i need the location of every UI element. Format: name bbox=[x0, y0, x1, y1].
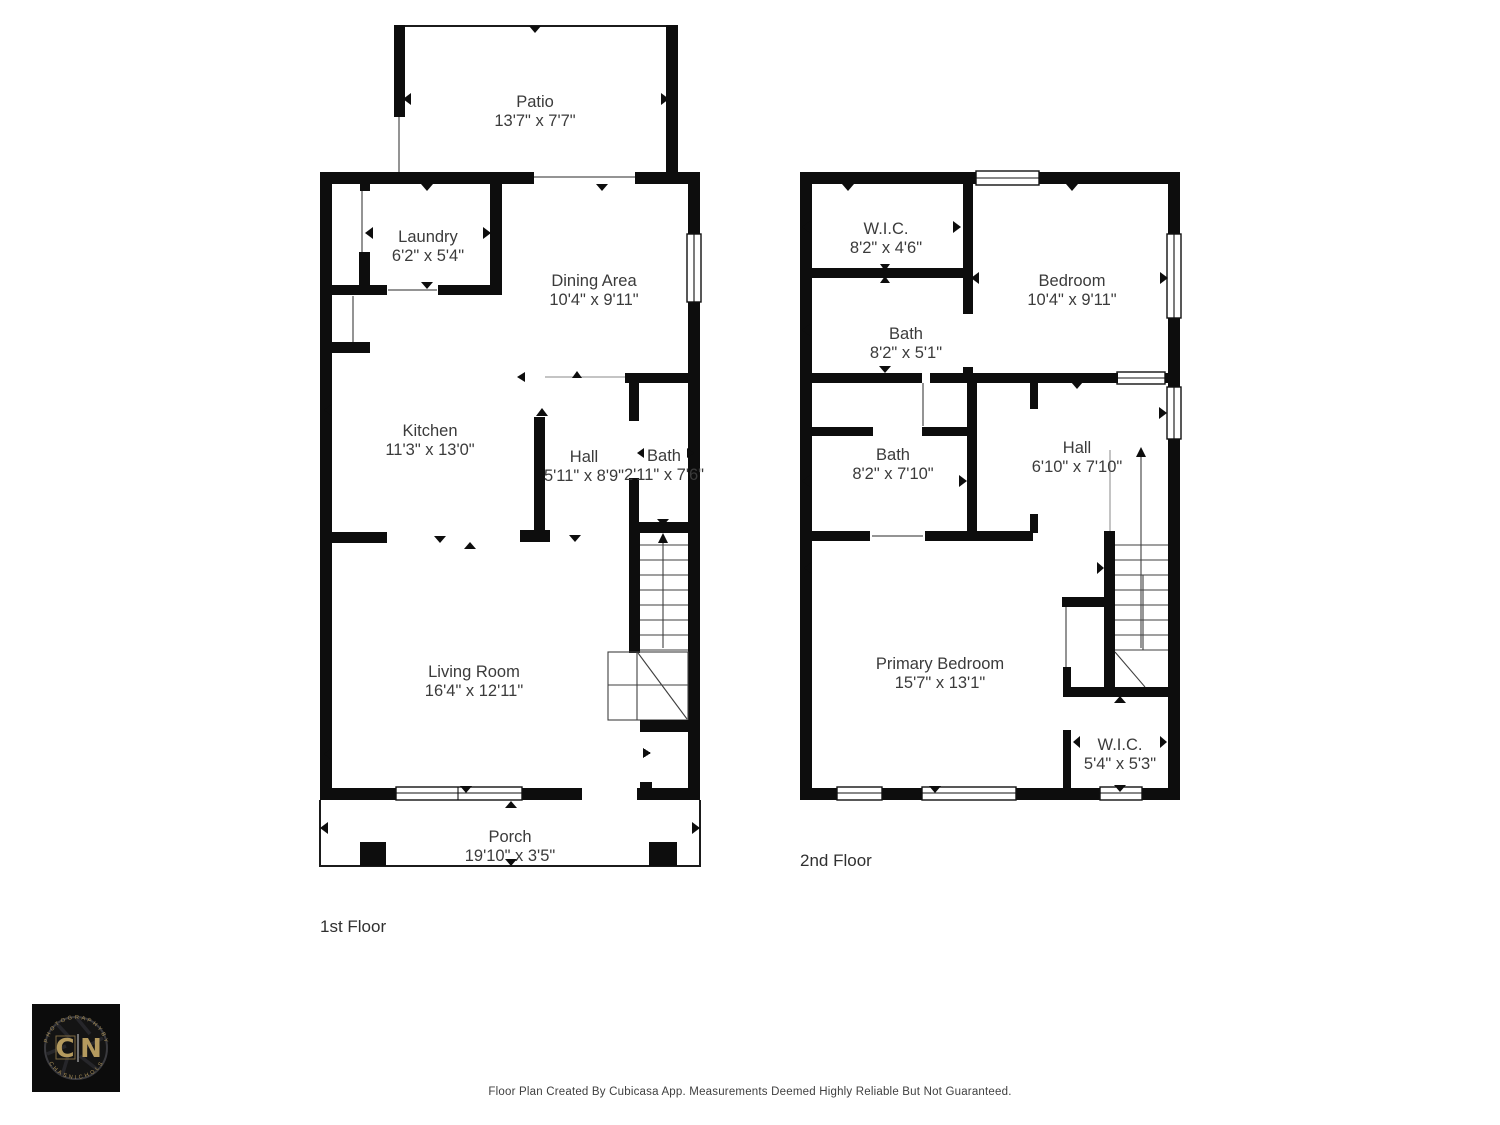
room-name: Living Room bbox=[425, 663, 523, 682]
room-name: W.I.C. bbox=[850, 220, 922, 239]
floor-caption-first: 1st Floor bbox=[320, 917, 386, 937]
room-name: Hall bbox=[1032, 439, 1123, 458]
room-label-patio: Patio 13'7" x 7'7" bbox=[494, 93, 575, 131]
room-dims: 16'4" x 12'11" bbox=[425, 682, 523, 701]
first-floor-plan bbox=[320, 25, 701, 866]
room-name: Laundry bbox=[392, 228, 464, 247]
room-dims: 8'2" x 4'6" bbox=[850, 239, 922, 258]
room-dims: 13'7" x 7'7" bbox=[494, 112, 575, 131]
room-label-hall-1f: Hall 5'11" x 8'9" bbox=[544, 448, 624, 486]
room-name: W.I.C. bbox=[1084, 736, 1156, 755]
room-name: Hall bbox=[544, 448, 624, 467]
room-label-living-room: Living Room 16'4" x 12'11" bbox=[425, 663, 523, 701]
room-label-wic-upper: W.I.C. 8'2" x 4'6" bbox=[850, 220, 922, 258]
room-name: Porch bbox=[465, 828, 556, 847]
stairs-1f bbox=[608, 519, 688, 720]
room-name: Bath bbox=[624, 447, 704, 466]
disclaimer-text: Floor Plan Created By Cubicasa App. Meas… bbox=[0, 1086, 1500, 1098]
logo-initial-left: C bbox=[55, 1034, 74, 1064]
second-floor-plan bbox=[800, 171, 1181, 800]
first-floor-outer-walls bbox=[320, 172, 700, 800]
room-dims: 11'3" x 13'0" bbox=[385, 441, 474, 460]
laundry-walls bbox=[322, 183, 502, 353]
room-dims: 15'7" x 13'1" bbox=[876, 674, 1004, 693]
room-label-laundry: Laundry 6'2" x 5'4" bbox=[392, 228, 464, 266]
room-label-bedroom: Bedroom 10'4" x 9'11" bbox=[1027, 272, 1116, 310]
room-name: Primary Bedroom bbox=[876, 655, 1004, 674]
room-label-bath-upper: Bath 8'2" x 5'1" bbox=[870, 325, 942, 363]
room-dims: 6'2" x 5'4" bbox=[392, 247, 464, 266]
room-label-primary-bedroom: Primary Bedroom 15'7" x 13'1" bbox=[876, 655, 1004, 693]
room-dims: 5'11" x 8'9" bbox=[544, 467, 624, 486]
room-label-bath-1f: Bath 2'11" x 7'6" bbox=[624, 447, 704, 485]
room-name: Dining Area bbox=[549, 272, 638, 291]
second-floor-outer-walls bbox=[800, 172, 1180, 800]
floor-plan-page: Patio 13'7" x 7'7" Laundry 6'2" x 5'4" D… bbox=[0, 0, 1500, 1125]
floor-plan-canvas bbox=[0, 0, 1500, 1125]
room-name: Bath bbox=[852, 446, 933, 465]
room-label-dining-area: Dining Area 10'4" x 9'11" bbox=[549, 272, 638, 310]
floor-caption-second: 2nd Floor bbox=[800, 851, 872, 871]
logo-initial-right: N bbox=[80, 1034, 102, 1064]
room-label-kitchen: Kitchen 11'3" x 13'0" bbox=[385, 422, 474, 460]
room-dims: 10'4" x 9'11" bbox=[1027, 291, 1116, 310]
room-label-hall-2f: Hall 6'10" x 7'10" bbox=[1032, 439, 1123, 477]
room-name: Kitchen bbox=[385, 422, 474, 441]
dimension-arrows-1f bbox=[320, 26, 700, 866]
logo-canvas: C N P H O T O G R A P H Y B Y C H A S N … bbox=[32, 1004, 120, 1092]
room-dims: 8'2" x 5'1" bbox=[870, 344, 942, 363]
stairs-2f bbox=[1104, 447, 1168, 697]
room-dims: 2'11" x 7'6" bbox=[624, 466, 704, 485]
first-floor-windows bbox=[396, 234, 701, 800]
room-name: Bedroom bbox=[1027, 272, 1116, 291]
room-label-bath-lower: Bath 8'2" x 7'10" bbox=[852, 446, 933, 484]
room-dims: 5'4" x 5'3" bbox=[1084, 755, 1156, 774]
room-name: Patio bbox=[494, 93, 575, 112]
room-label-wic-primary: W.I.C. 5'4" x 5'3" bbox=[1084, 736, 1156, 774]
room-label-porch: Porch 19'10" x 3'5" bbox=[465, 828, 556, 866]
room-dims: 10'4" x 9'11" bbox=[549, 291, 638, 310]
photographer-logo: C N P H O T O G R A P H Y B Y C H A S N … bbox=[32, 1004, 120, 1092]
room-name: Bath bbox=[870, 325, 942, 344]
room-dims: 8'2" x 7'10" bbox=[852, 465, 933, 484]
room-dims: 19'10" x 3'5" bbox=[465, 847, 556, 866]
room-dims: 6'10" x 7'10" bbox=[1032, 458, 1123, 477]
